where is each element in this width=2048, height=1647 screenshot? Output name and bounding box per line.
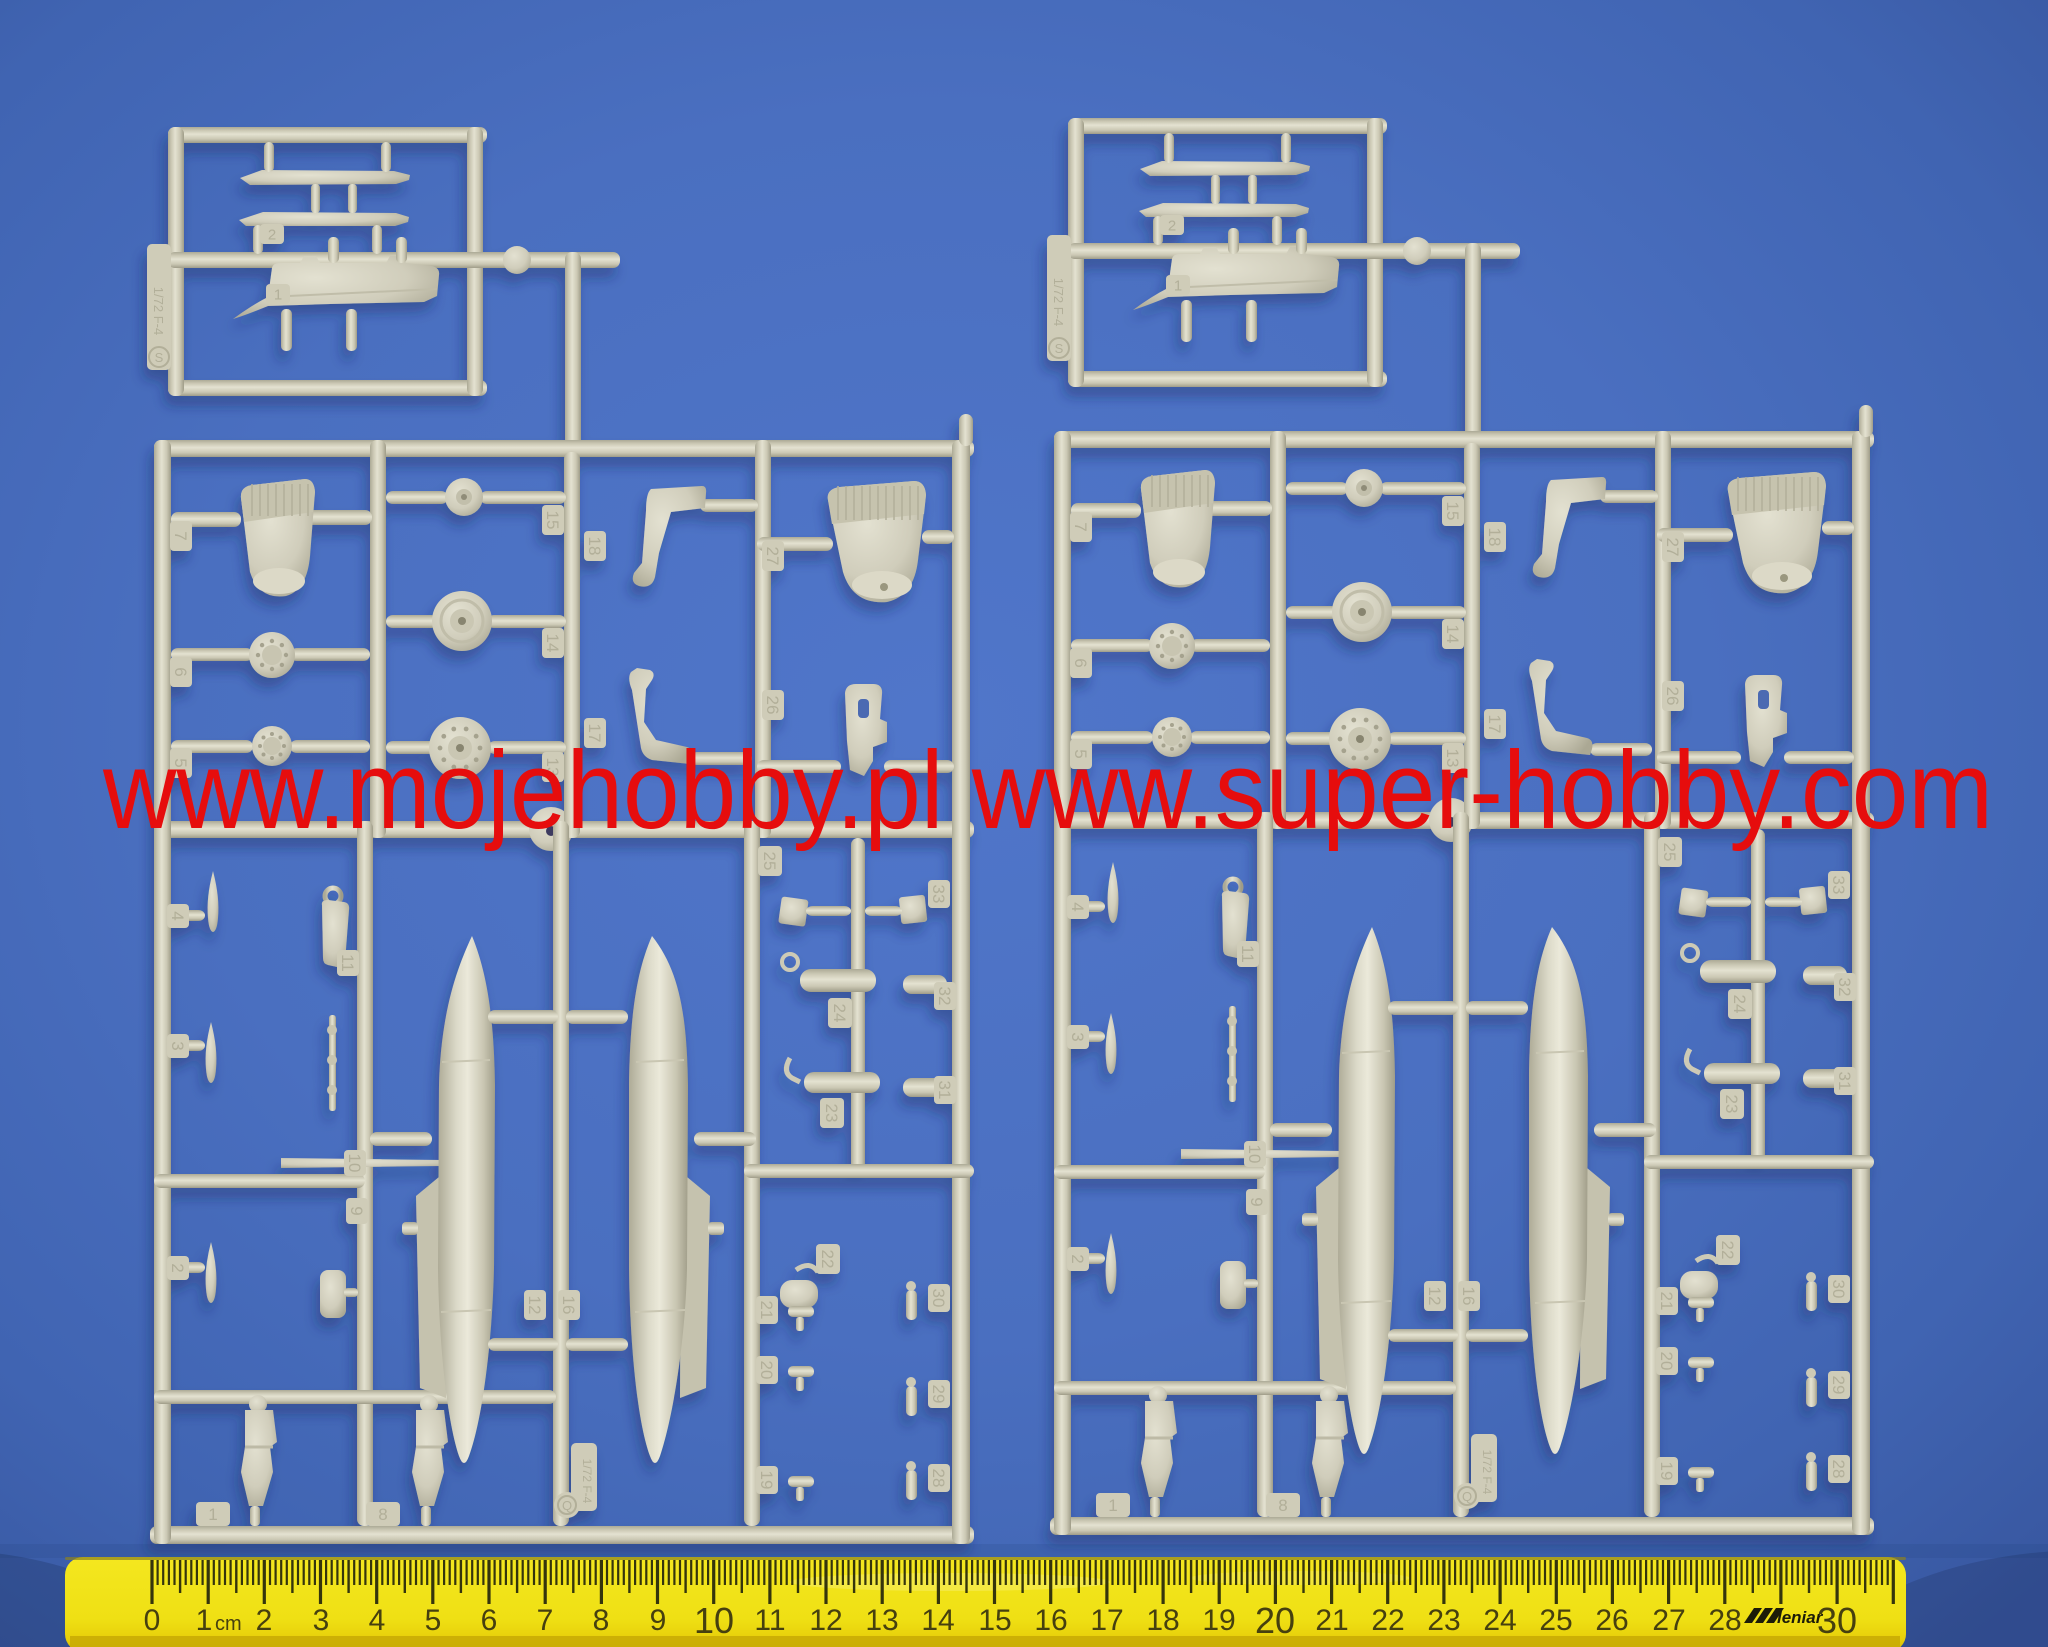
svg-text:22: 22: [1371, 1604, 1404, 1637]
svg-text:4: 4: [369, 1604, 386, 1637]
svg-text:3: 3: [313, 1604, 330, 1637]
svg-text:10: 10: [694, 1600, 734, 1641]
svg-text:26: 26: [1595, 1604, 1628, 1637]
svg-text:28: 28: [1708, 1604, 1741, 1637]
svg-text:2: 2: [256, 1604, 273, 1637]
svg-text:www.mojehobby.pl www.super-hob: www.mojehobby.pl www.super-hobby.com: [102, 729, 1993, 852]
svg-text:15: 15: [978, 1604, 1011, 1637]
svg-text:24: 24: [1483, 1604, 1516, 1637]
svg-text:13: 13: [865, 1604, 898, 1637]
svg-text:20: 20: [1255, 1600, 1295, 1641]
svg-text:23: 23: [1427, 1604, 1460, 1637]
svg-text:12: 12: [809, 1604, 842, 1637]
svg-text:5: 5: [425, 1604, 442, 1637]
svg-text:19: 19: [1202, 1604, 1235, 1637]
svg-text:17: 17: [1090, 1604, 1123, 1637]
svg-text:leniar: leniar: [1777, 1608, 1824, 1627]
svg-text:18: 18: [1146, 1604, 1179, 1637]
svg-text:16: 16: [1034, 1604, 1067, 1637]
svg-text:21: 21: [1315, 1604, 1348, 1637]
svg-text:30: 30: [1817, 1600, 1857, 1641]
svg-text:8: 8: [593, 1604, 610, 1637]
svg-text:25: 25: [1539, 1604, 1572, 1637]
svg-text:1: 1: [196, 1604, 213, 1637]
svg-text:7: 7: [537, 1604, 554, 1637]
svg-text:11: 11: [754, 1604, 785, 1637]
svg-text:6: 6: [481, 1604, 498, 1637]
svg-text:14: 14: [921, 1604, 954, 1637]
svg-text:0: 0: [144, 1604, 161, 1637]
svg-text:cm: cm: [215, 1613, 242, 1635]
svg-text:9: 9: [650, 1604, 667, 1637]
svg-text:27: 27: [1652, 1604, 1685, 1637]
